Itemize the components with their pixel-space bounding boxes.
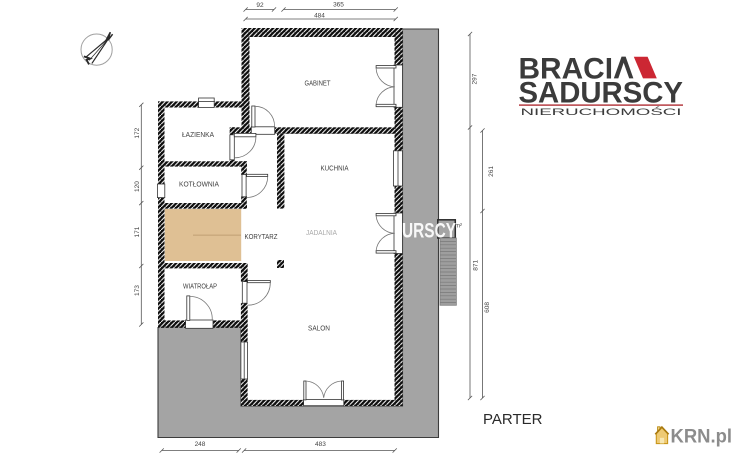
svg-text:365: 365 bbox=[333, 2, 344, 9]
svg-text:173: 173 bbox=[134, 285, 141, 296]
svg-text:SALON: SALON bbox=[308, 326, 330, 333]
svg-text:92: 92 bbox=[256, 2, 264, 9]
svg-text:172: 172 bbox=[134, 127, 141, 138]
svg-text:120: 120 bbox=[134, 181, 141, 192]
svg-text:PARTER: PARTER bbox=[483, 411, 543, 428]
svg-text:248: 248 bbox=[195, 441, 206, 448]
svg-text:KRN.pl: KRN.pl bbox=[671, 426, 733, 448]
svg-text:WIATROŁAP: WIATROŁAP bbox=[183, 284, 217, 291]
svg-text:URSCY: URSCY bbox=[402, 219, 456, 243]
svg-text:KOTŁOWNIA: KOTŁOWNIA bbox=[179, 182, 219, 189]
svg-text:483: 483 bbox=[315, 441, 326, 448]
svg-text:m²: m² bbox=[455, 224, 462, 230]
svg-text:ŁAZIENKA: ŁAZIENKA bbox=[182, 132, 214, 139]
svg-text:GABINET: GABINET bbox=[305, 81, 332, 88]
svg-text:171: 171 bbox=[134, 226, 141, 237]
svg-text:871: 871 bbox=[473, 259, 480, 270]
svg-text:JADALNIA: JADALNIA bbox=[306, 230, 337, 237]
svg-text:608: 608 bbox=[484, 302, 491, 313]
svg-text:KUCHNIA: KUCHNIA bbox=[321, 166, 349, 173]
svg-text:297: 297 bbox=[472, 73, 479, 84]
svg-text:261: 261 bbox=[488, 166, 495, 177]
svg-text:KORYTARZ: KORYTARZ bbox=[245, 234, 279, 241]
svg-text:NIERUCHOMOŚCI: NIERUCHOMOŚCI bbox=[521, 106, 682, 118]
svg-text:484: 484 bbox=[314, 13, 325, 20]
